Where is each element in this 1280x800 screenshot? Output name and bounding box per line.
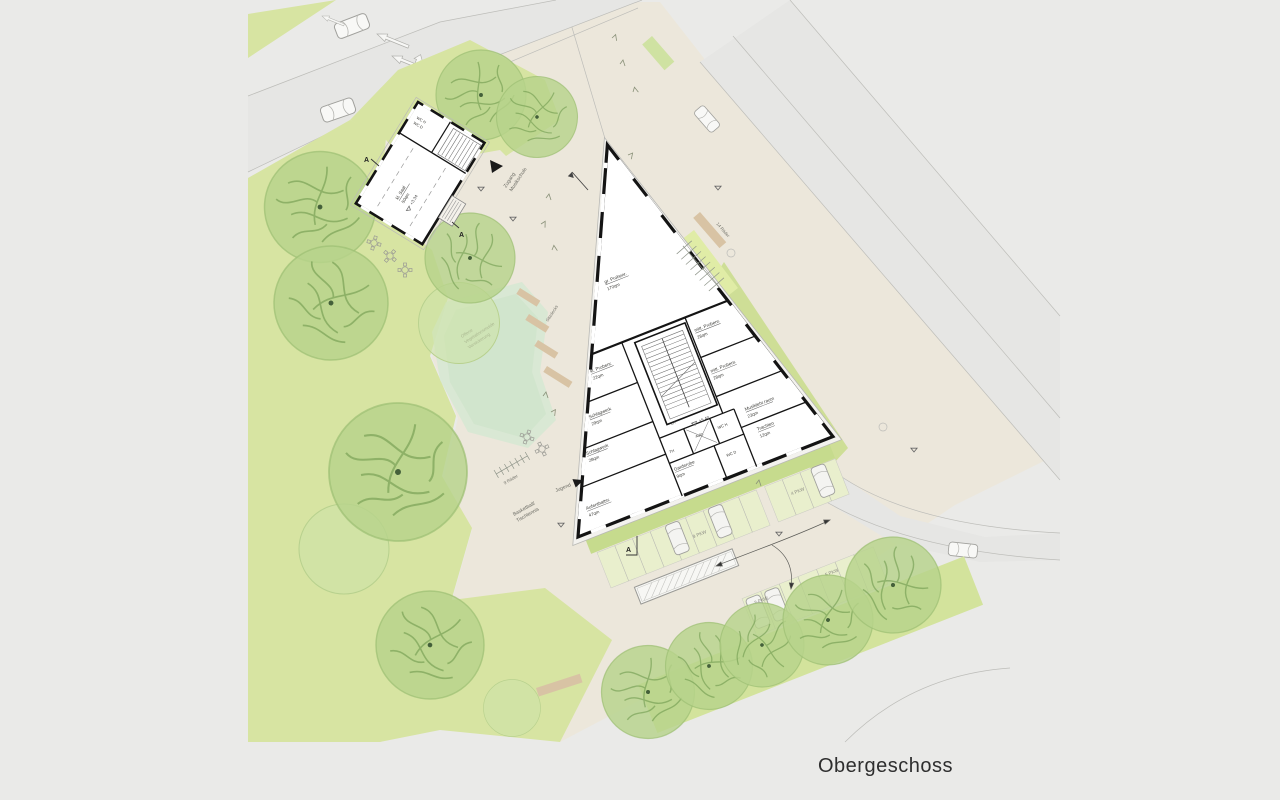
car-on-road	[948, 542, 978, 559]
svg-text:A: A	[459, 232, 464, 239]
plan-title: Obergeschoss	[818, 755, 953, 777]
site-plan-canvas: Offene Vegetationsmulde Versickerung Sit…	[0, 0, 1280, 800]
svg-text:A: A	[626, 547, 631, 554]
site-plan-page: Offene Vegetationsmulde Versickerung Sit…	[0, 0, 1280, 800]
svg-text:A: A	[364, 157, 369, 164]
